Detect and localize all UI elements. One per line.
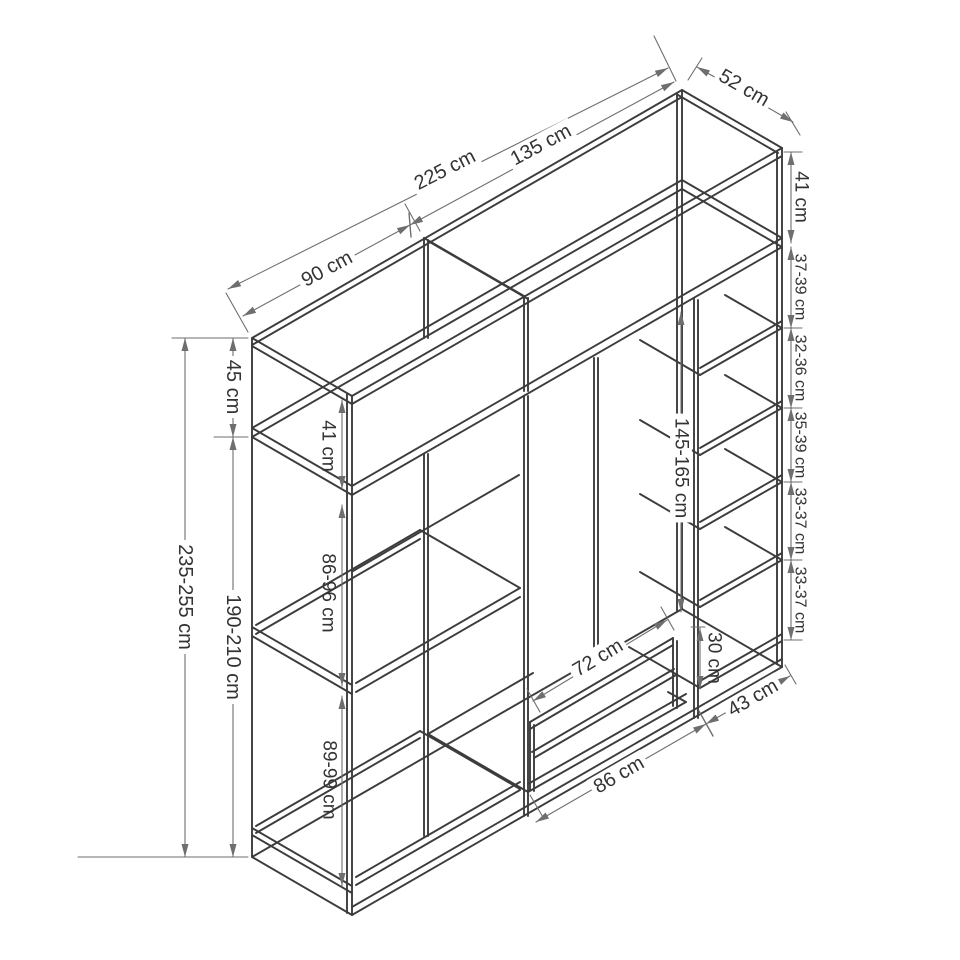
dimension-label: 86-96 cm [318, 553, 339, 632]
dimension-label: 33-37 cm [792, 488, 809, 555]
dimension-label: 235-255 cm [174, 544, 196, 650]
background [0, 0, 960, 960]
dimension-label: 30 cm [704, 632, 725, 684]
dimension-label: 45 cm [222, 360, 244, 414]
dimension-label: 37-39 cm [792, 254, 809, 321]
dimension-6: 32-36 cm [788, 328, 809, 408]
dimension-label: 35-39 cm [792, 412, 809, 479]
diagram-canvas: 225 cm90 cm135 cm52 cm41 cm37-39 cm32-36… [0, 0, 960, 960]
dimension-label: 89-99 cm [319, 740, 340, 819]
dimension-label: 145-165 cm [671, 418, 692, 518]
dimension-label: 41 cm [791, 171, 812, 223]
dimension-7: 35-39 cm [788, 408, 809, 482]
dimension-label: 33-37 cm [792, 567, 809, 634]
dimension-label: 32-36 cm [792, 335, 809, 402]
dimension-8: 33-37 cm [788, 482, 809, 560]
dimension-label: 190-210 cm [222, 594, 244, 700]
wardrobe-dimension-diagram: 225 cm90 cm135 cm52 cm41 cm37-39 cm32-36… [0, 0, 960, 960]
dimension-5: 37-39 cm [788, 247, 809, 328]
dimension-9: 33-37 cm [788, 560, 809, 640]
dimension-label: 41 cm [318, 420, 339, 472]
